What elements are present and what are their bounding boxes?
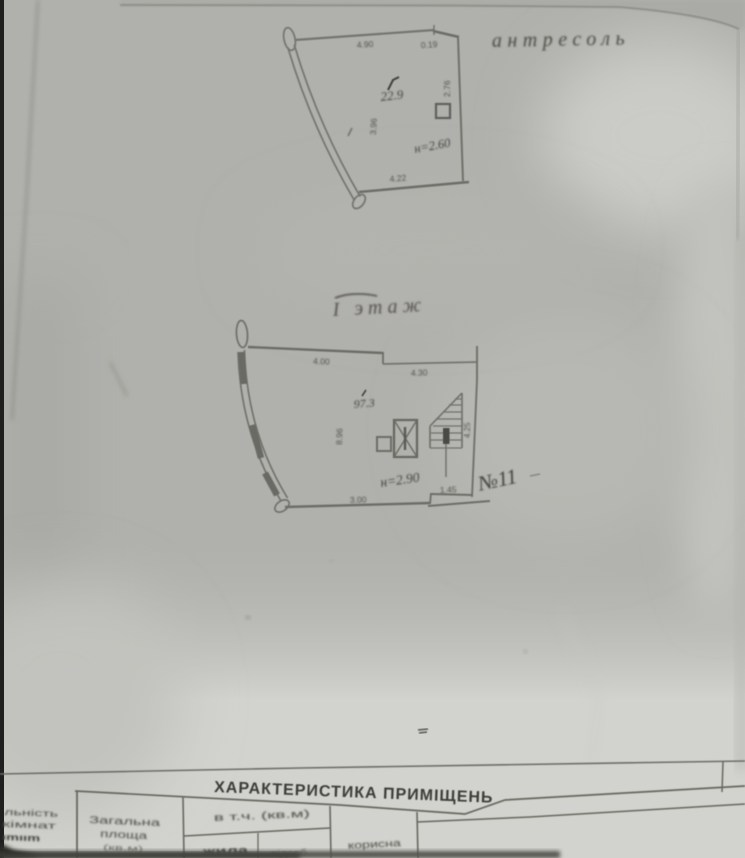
svg-text:3.96: 3.96 [368,118,379,135]
svg-text:3.00: 3.00 [350,494,367,505]
svg-text:площа: площа [100,829,148,842]
svg-text:1.45: 1.45 [440,484,457,495]
svg-text:4.30: 4.30 [411,367,428,378]
svg-text:0.19: 0.19 [420,39,437,50]
svg-text:4.00: 4.00 [313,356,330,367]
svg-text:4.22: 4.22 [389,173,407,184]
svg-text:ımıım: ımıım [2,832,40,844]
svg-text:льність: льність [4,807,58,820]
svg-text:22.9: 22.9 [380,87,405,104]
svg-text:4.25: 4.25 [463,422,472,438]
svg-text:2.76: 2.76 [442,80,452,97]
svg-text:97.3: 97.3 [353,396,375,411]
svg-text:8.96: 8.96 [334,428,345,445]
svg-text:4.90: 4.90 [356,39,373,50]
svg-text:кімнат: кімнат [2,819,58,832]
svg-text:антресоль: антресоль [492,28,631,52]
